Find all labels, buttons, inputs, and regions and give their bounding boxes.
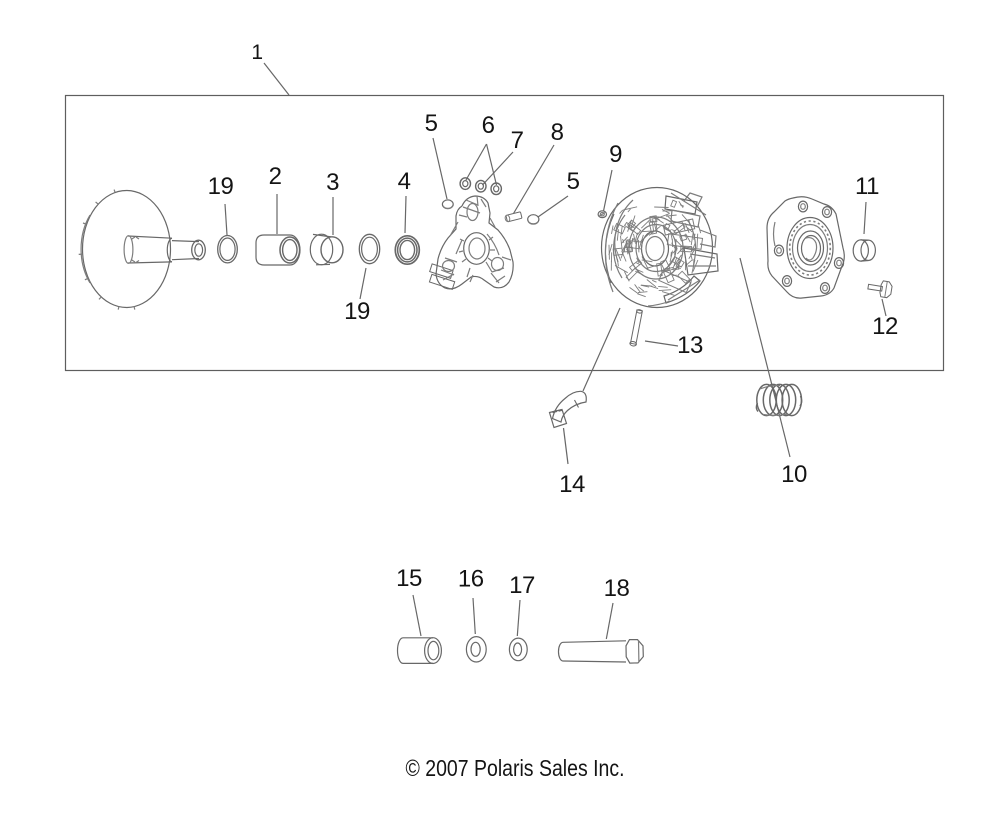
svg-text:4: 4	[398, 168, 411, 195]
svg-text:18: 18	[604, 575, 630, 602]
svg-text:16: 16	[458, 566, 484, 593]
svg-text:19: 19	[208, 173, 234, 200]
svg-text:6: 6	[482, 112, 495, 139]
svg-text:© 2007 Polaris Sales Inc.: © 2007 Polaris Sales Inc.	[406, 755, 625, 781]
svg-text:14: 14	[559, 471, 585, 498]
svg-text:11: 11	[855, 173, 879, 200]
svg-text:17: 17	[509, 572, 535, 599]
svg-text:3: 3	[326, 169, 339, 196]
svg-text:12: 12	[872, 313, 898, 340]
svg-text:7: 7	[511, 127, 524, 154]
svg-text:9: 9	[609, 141, 622, 168]
svg-text:5: 5	[425, 110, 438, 137]
svg-text:13: 13	[677, 332, 703, 359]
svg-text:8: 8	[551, 119, 564, 146]
svg-text:19: 19	[344, 298, 370, 325]
svg-text:5: 5	[567, 168, 580, 195]
svg-text:2: 2	[269, 163, 282, 190]
svg-text:1: 1	[251, 41, 262, 64]
svg-text:10: 10	[781, 461, 807, 488]
svg-text:15: 15	[396, 565, 422, 592]
